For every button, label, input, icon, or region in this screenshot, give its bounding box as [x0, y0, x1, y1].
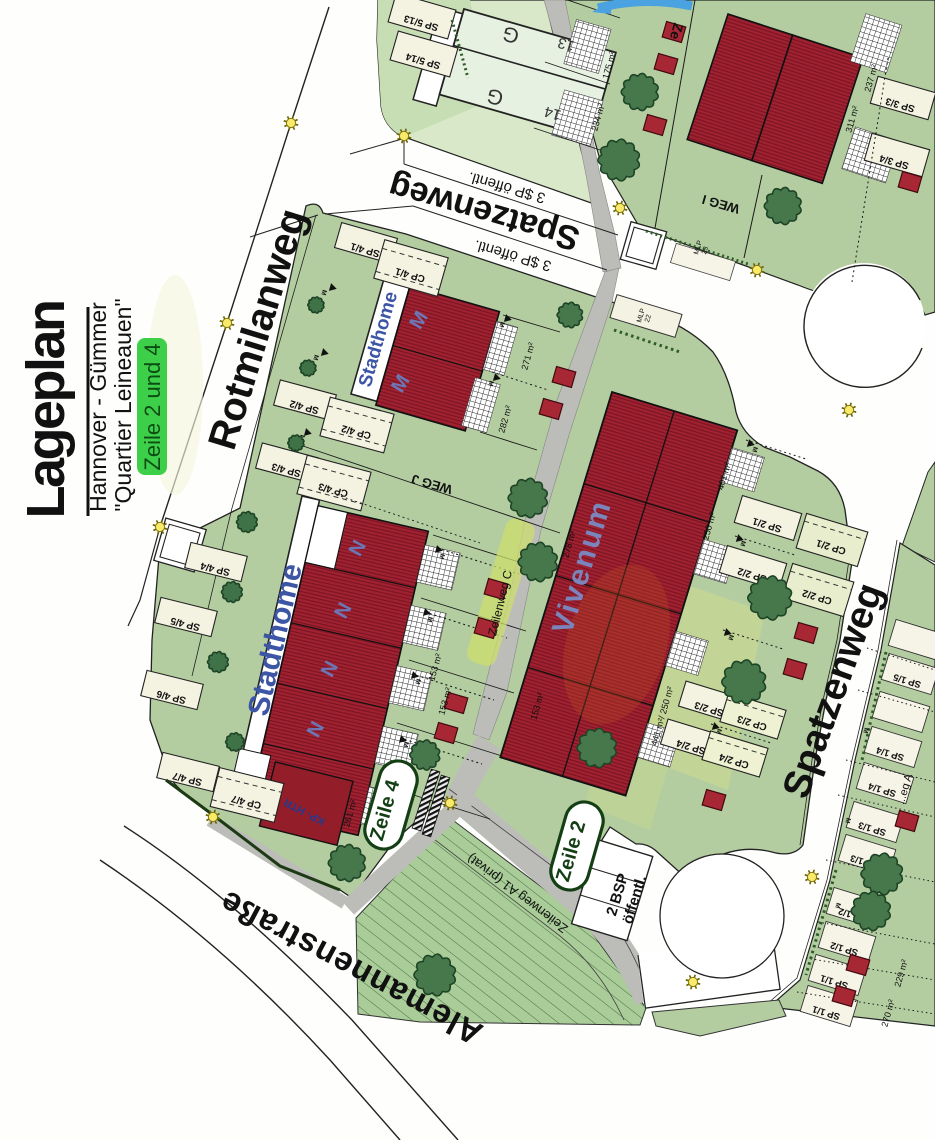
svg-text:Lageplan: Lageplan	[16, 301, 76, 518]
svg-text:Hannover - Gümmer: Hannover - Gümmer	[85, 302, 111, 512]
svg-text:Zeile 2 und 4: Zeile 2 und 4	[140, 343, 165, 470]
svg-text:"Quartier Leineauen": "Quartier Leineauen"	[110, 298, 136, 511]
